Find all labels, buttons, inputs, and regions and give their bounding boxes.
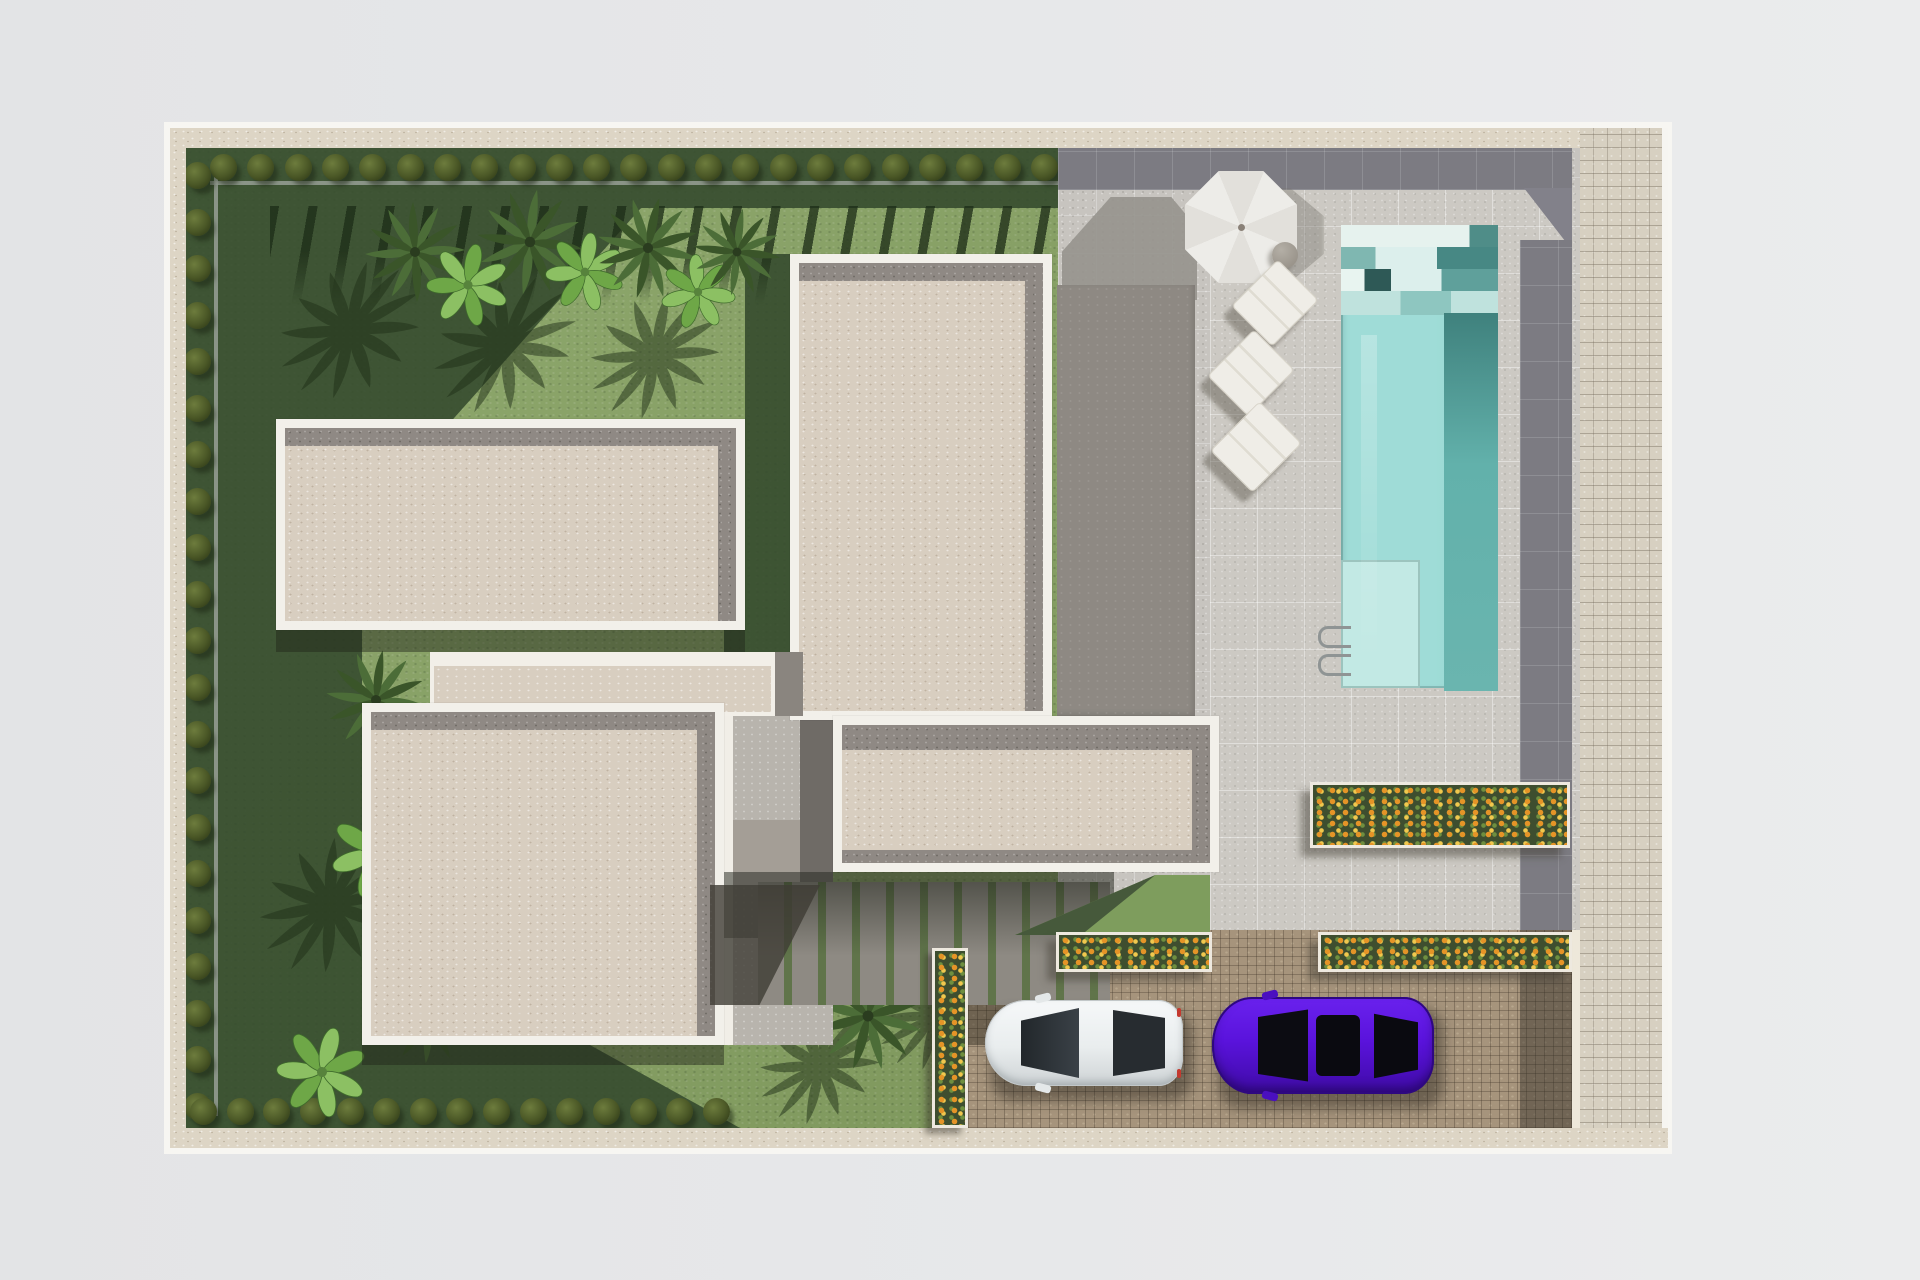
roof-gravel bbox=[371, 730, 697, 1036]
gate-threshold bbox=[1572, 930, 1580, 1128]
hedge-shrub bbox=[770, 154, 797, 181]
hedge-shrub bbox=[471, 154, 498, 181]
lawn-wedge bbox=[1015, 875, 1210, 935]
rear-window bbox=[1374, 1011, 1418, 1081]
hedge-shrub bbox=[184, 162, 211, 189]
flower-planter-pool bbox=[1310, 782, 1570, 848]
hedge-shrub bbox=[184, 953, 211, 980]
garage-roof bbox=[1057, 285, 1195, 716]
rear-window bbox=[1113, 1010, 1165, 1076]
hedge-shrub bbox=[184, 860, 211, 887]
hedge-shrub bbox=[732, 154, 759, 181]
hedge-shrub bbox=[184, 1046, 211, 1073]
hedge-shrub bbox=[184, 767, 211, 794]
garden-fence-line-left bbox=[214, 166, 218, 1116]
hedge-shrub bbox=[184, 255, 211, 282]
hedge-row-bottom bbox=[190, 1094, 730, 1128]
hedge-shrub bbox=[994, 154, 1021, 181]
hedge-shrub bbox=[184, 1000, 211, 1027]
hedge-shrub bbox=[807, 154, 834, 181]
sidewalk-strip bbox=[1580, 128, 1668, 1148]
roof-gravel bbox=[842, 750, 1192, 850]
hedge-shrub bbox=[919, 154, 946, 181]
ladder-rail bbox=[1318, 654, 1351, 676]
hedge-shrub bbox=[184, 488, 211, 515]
hedge-shrub bbox=[520, 1098, 547, 1125]
pool-ladder-icon bbox=[1318, 626, 1358, 678]
hedge-shrub bbox=[285, 154, 312, 181]
hedge-shrub bbox=[658, 154, 685, 181]
building-shadow bbox=[362, 1045, 724, 1065]
banana-plant bbox=[269, 1019, 376, 1126]
building-lower-left-wing bbox=[362, 703, 724, 1045]
roof-gravel bbox=[799, 281, 1025, 711]
hedge-shrub bbox=[184, 674, 211, 701]
hedge-shrub bbox=[184, 395, 211, 422]
hedge-shrub bbox=[210, 154, 237, 181]
hedge-shrub bbox=[359, 154, 386, 181]
windshield bbox=[1021, 1008, 1079, 1078]
hedge-shrub bbox=[184, 534, 211, 561]
hedge-shrub bbox=[703, 1098, 730, 1125]
hedge-shrub bbox=[1031, 154, 1058, 181]
hedge-shrub bbox=[184, 302, 211, 329]
building-shadow bbox=[276, 630, 745, 652]
pool-deep-lane bbox=[1444, 313, 1498, 691]
sun-lounger bbox=[1222, 340, 1280, 406]
car-body bbox=[985, 1000, 1183, 1086]
hedge-shrub bbox=[184, 209, 211, 236]
terrace-dark-band-top bbox=[1058, 148, 1572, 190]
boundary-wall-left bbox=[170, 128, 186, 1148]
windshield bbox=[1258, 1008, 1308, 1083]
hedge-shrub bbox=[322, 154, 349, 181]
tail-light bbox=[1177, 1008, 1181, 1017]
boundary-wall-bottom bbox=[170, 1128, 1668, 1148]
sun-lounger bbox=[1226, 412, 1286, 482]
pool-entry-step bbox=[1341, 247, 1498, 269]
hedge-shrub bbox=[956, 154, 983, 181]
hedge-shrub bbox=[184, 907, 211, 934]
hedge-shrub bbox=[190, 1098, 217, 1125]
hedge-shrub bbox=[184, 814, 211, 841]
hedge-shrub bbox=[882, 154, 909, 181]
hedge-shrub bbox=[397, 154, 424, 181]
hedge-shrub bbox=[630, 1098, 657, 1125]
hedge-shrub bbox=[844, 154, 871, 181]
hedge-shrub bbox=[483, 1098, 510, 1125]
hedge-shrub bbox=[446, 1098, 473, 1125]
corridor-wall-shadow bbox=[775, 652, 803, 716]
flower-planter-drive-right bbox=[1318, 932, 1572, 972]
roof-gravel bbox=[285, 446, 718, 621]
hedge-shrub bbox=[546, 154, 573, 181]
hedge-shrub bbox=[184, 627, 211, 654]
pool-entry-step bbox=[1341, 291, 1498, 315]
ladder-rail bbox=[1318, 626, 1351, 648]
flower-planter-drive-left bbox=[1056, 932, 1212, 972]
sun-lounger bbox=[1246, 270, 1304, 336]
building-upper-left-wing bbox=[276, 419, 745, 630]
car-body bbox=[1212, 997, 1434, 1094]
pool-entry-step bbox=[1341, 225, 1498, 247]
hedge-shrub bbox=[184, 721, 211, 748]
hedge-shrub bbox=[593, 1098, 620, 1125]
swimming-pool bbox=[1341, 225, 1498, 688]
hedge-shrub bbox=[620, 154, 647, 181]
site-plan bbox=[0, 0, 1920, 1280]
sunroof bbox=[1316, 1015, 1360, 1076]
pool-water-reflection bbox=[1361, 335, 1377, 665]
building-rear-wing bbox=[833, 716, 1219, 872]
building-tall-central-wing bbox=[790, 254, 1052, 720]
tail-light bbox=[1177, 1069, 1181, 1078]
hedge-shrub bbox=[583, 154, 610, 181]
hedge-shrub bbox=[434, 154, 461, 181]
flower-planter-vertical bbox=[932, 948, 968, 1128]
hedge-shrub bbox=[247, 154, 274, 181]
hedge-shrub bbox=[556, 1098, 583, 1125]
hedge-shrub bbox=[666, 1098, 693, 1125]
hedge-shrub bbox=[227, 1098, 254, 1125]
white-car bbox=[985, 1000, 1183, 1086]
hedge-shrub bbox=[373, 1098, 400, 1125]
hedge-shrub bbox=[184, 441, 211, 468]
hedge-shrub bbox=[695, 154, 722, 181]
hedge-shrub bbox=[184, 581, 211, 608]
hedge-shrub bbox=[184, 348, 211, 375]
pool-entry-step bbox=[1341, 269, 1498, 291]
hedge-shrub bbox=[410, 1098, 437, 1125]
boundary-wall-top bbox=[170, 128, 1580, 148]
purple-car bbox=[1212, 997, 1434, 1094]
hedge-row-top bbox=[210, 150, 1058, 184]
